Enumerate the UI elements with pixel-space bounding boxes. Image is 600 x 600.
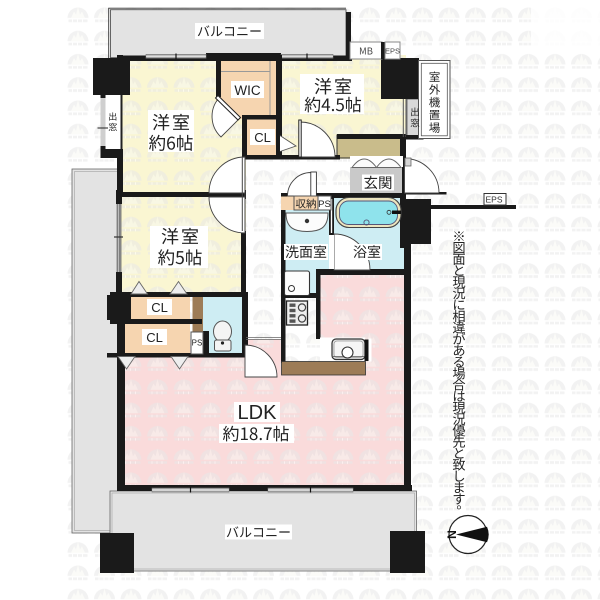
svg-text:WIC: WIC xyxy=(234,83,260,98)
svg-text:CL: CL xyxy=(254,130,271,145)
svg-text:CL: CL xyxy=(146,330,163,345)
svg-text:N: N xyxy=(445,530,459,539)
svg-text:EPS: EPS xyxy=(385,47,400,56)
svg-text:EPS: EPS xyxy=(485,195,502,205)
svg-text:LDK: LDK xyxy=(238,402,278,424)
svg-text:PS: PS xyxy=(192,339,203,348)
svg-text:PS: PS xyxy=(318,199,331,210)
svg-text:CL: CL xyxy=(151,300,168,315)
